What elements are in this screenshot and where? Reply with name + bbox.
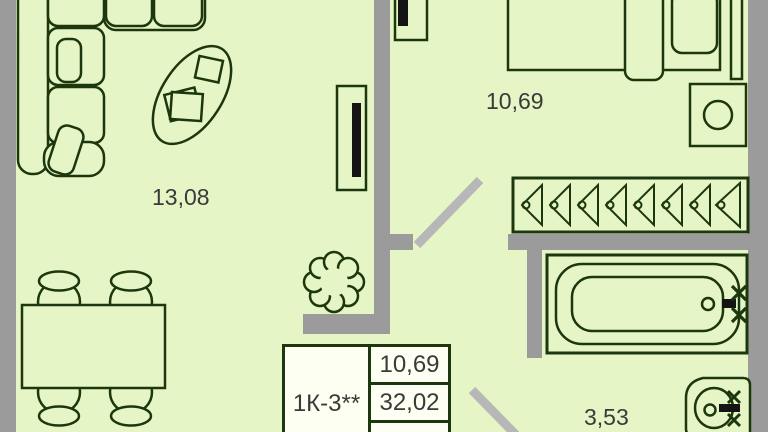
wall-bedroom-door-stub bbox=[390, 234, 413, 250]
wall-bedroom-bottom bbox=[508, 234, 768, 250]
chair-back-icon bbox=[39, 407, 79, 426]
blanket-icon bbox=[625, 0, 663, 80]
headboard-icon bbox=[731, 0, 742, 79]
door-swing-icon bbox=[417, 180, 480, 245]
floor-plan: 13,08 10,69 3,53 1К-3** 10,69 32,02 33,5… bbox=[0, 0, 768, 432]
apartment-info-table: 1К-3** 10,69 32,02 33,53 bbox=[282, 344, 451, 432]
apartment-type-cell: 1К-3** bbox=[285, 347, 371, 432]
nightstand-icon bbox=[690, 84, 746, 146]
bathtub-icon bbox=[547, 255, 747, 353]
dining-table-icon bbox=[22, 305, 165, 388]
tv-stand-bedroom bbox=[395, 0, 427, 40]
drain-icon bbox=[702, 298, 714, 310]
sink-icon bbox=[686, 378, 750, 432]
tv-icon bbox=[352, 103, 361, 177]
room-label-living: 13,08 bbox=[152, 186, 210, 209]
sofa-icon bbox=[18, 0, 205, 177]
chair-back-icon bbox=[39, 272, 79, 291]
area-value-cell: 10,69 bbox=[371, 347, 448, 385]
bed-icon bbox=[508, 0, 742, 80]
pillow-icon bbox=[672, 0, 717, 53]
chair-back-icon bbox=[111, 407, 151, 426]
faucet-icon bbox=[719, 404, 740, 412]
area-value-cell: 33,53 bbox=[371, 423, 448, 432]
wall-living-bottom bbox=[303, 314, 390, 334]
plant-icon bbox=[304, 252, 364, 312]
area-value-cell: 32,02 bbox=[371, 385, 448, 423]
room-label-bedroom: 10,69 bbox=[486, 90, 544, 113]
room-label-bathroom: 3,53 bbox=[584, 406, 629, 429]
dining-set bbox=[22, 272, 165, 426]
door-swing-icon bbox=[472, 390, 517, 432]
wall-bathroom-left bbox=[527, 250, 542, 358]
coffee-table-icon bbox=[137, 33, 247, 158]
wall-left bbox=[0, 0, 16, 432]
wall-right bbox=[748, 0, 768, 432]
chair-back-icon bbox=[111, 272, 151, 291]
tv-cabinet-icon bbox=[337, 86, 366, 190]
wall-center-vertical bbox=[374, 0, 390, 334]
wardrobe-icon bbox=[513, 178, 748, 232]
tv-icon bbox=[398, 0, 408, 26]
